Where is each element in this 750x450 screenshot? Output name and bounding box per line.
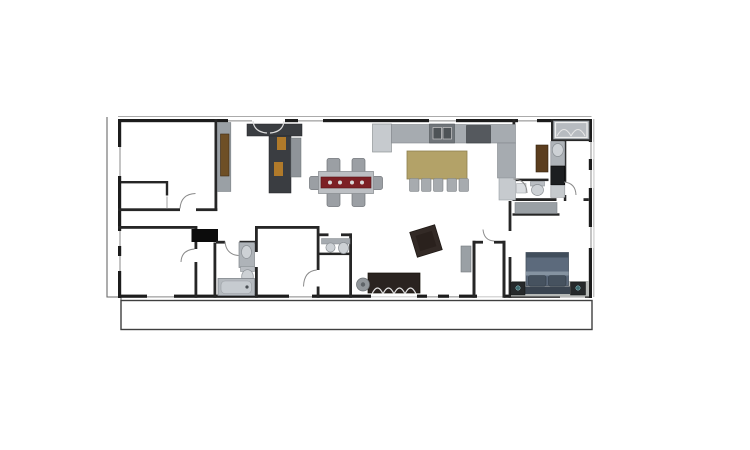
wall-entry-right xyxy=(503,241,506,298)
kitchen-counter-return xyxy=(498,143,516,178)
floor-plan-svg xyxy=(0,0,750,450)
island-stool-2 xyxy=(422,179,432,192)
wall-closet1-top xyxy=(121,181,168,183)
dining-setting-2 xyxy=(338,181,342,185)
wall-entry-left xyxy=(473,241,476,298)
wall-bedroom2-right-b xyxy=(195,262,198,298)
bath2-sink xyxy=(326,243,335,252)
wall-entry-top-b xyxy=(494,241,506,244)
wall-bath2-mid xyxy=(320,253,353,256)
wall-bedroom3-top xyxy=(255,226,320,229)
fridge xyxy=(373,124,392,152)
door-arc-bath1 xyxy=(225,242,239,256)
floor-speaker-center xyxy=(361,282,365,286)
lamp-right xyxy=(576,286,580,290)
media-console xyxy=(368,273,420,293)
lamp-left xyxy=(516,286,520,290)
door-arc-entry xyxy=(483,230,494,242)
wall-entry-top-a xyxy=(473,241,484,244)
door-arc-bedroom4 xyxy=(564,182,576,195)
dining-setting-4 xyxy=(360,181,364,185)
door-arc-bedroom1 xyxy=(180,194,196,209)
bath1-sink xyxy=(242,246,252,259)
wall-hall-a xyxy=(513,198,557,201)
bath1-tub-drain xyxy=(245,285,248,288)
wall-shower-left xyxy=(551,119,554,141)
bed-pillow-left xyxy=(529,276,547,287)
island-stool-1 xyxy=(410,179,420,192)
bath3-appliance xyxy=(551,185,565,197)
wall-master-left-a xyxy=(509,201,512,231)
wall-bedroom3-right-b xyxy=(317,287,320,298)
kitchen-counter-return-low xyxy=(499,178,516,200)
wall-bedroom1-bottom-a xyxy=(118,208,180,211)
bath3-vanity-cabinet xyxy=(536,145,548,172)
dining-setting-3 xyxy=(350,181,354,185)
kitchen-cooktop xyxy=(467,126,491,144)
wall-closet1-right xyxy=(166,181,168,196)
bath3-sink xyxy=(552,144,563,157)
pantry-counter-top xyxy=(247,124,302,136)
pantry-accent-1 xyxy=(277,137,286,150)
wall-bedroom3-left-b xyxy=(255,267,258,298)
kitchen-sink-bowl-1 xyxy=(433,128,442,140)
bath3-shower xyxy=(554,121,590,139)
pantry-door-gap xyxy=(252,118,285,123)
bed-pillow-right xyxy=(549,276,567,287)
bed-sheet-band xyxy=(526,272,569,276)
bed-foot-band xyxy=(526,253,569,258)
wall-bedroom3-right-a xyxy=(317,226,320,270)
wall-bath2-top-a xyxy=(320,233,329,236)
wall-hall-b xyxy=(584,198,589,201)
wall-bath1-top-a xyxy=(216,241,225,244)
pantry-accent-2 xyxy=(274,162,283,176)
island-stool-4 xyxy=(447,179,457,192)
wall-bedroom3-left-a xyxy=(255,226,258,252)
pantry-side-cabinet xyxy=(291,138,301,177)
floor-plan xyxy=(0,0,750,450)
island-stool-5 xyxy=(459,179,469,192)
bath3-range xyxy=(551,166,565,185)
wall-closet2-right xyxy=(214,243,217,298)
bed-headboard xyxy=(525,287,571,295)
bath2-toilet xyxy=(339,242,349,253)
closet2-wardrobe xyxy=(192,229,219,242)
bath3-toilet-bowl xyxy=(532,185,544,196)
master-closet-shelf xyxy=(515,203,557,214)
console-table xyxy=(461,246,471,272)
wall-bedroom1-bottom-b xyxy=(196,208,217,211)
deck-outline xyxy=(121,301,592,330)
wall-bedroom2-top xyxy=(118,226,197,229)
door-arc-bedroom2 xyxy=(181,249,195,262)
island-stool-3 xyxy=(434,179,444,192)
wall-bedroom1-right xyxy=(215,119,218,211)
dining-setting-1 xyxy=(328,181,332,185)
wardrobe-door xyxy=(221,134,230,176)
kitchen-island xyxy=(407,151,467,179)
door-arc-bedroom3 xyxy=(304,270,317,287)
kitchen-sink-bowl-2 xyxy=(443,128,452,140)
